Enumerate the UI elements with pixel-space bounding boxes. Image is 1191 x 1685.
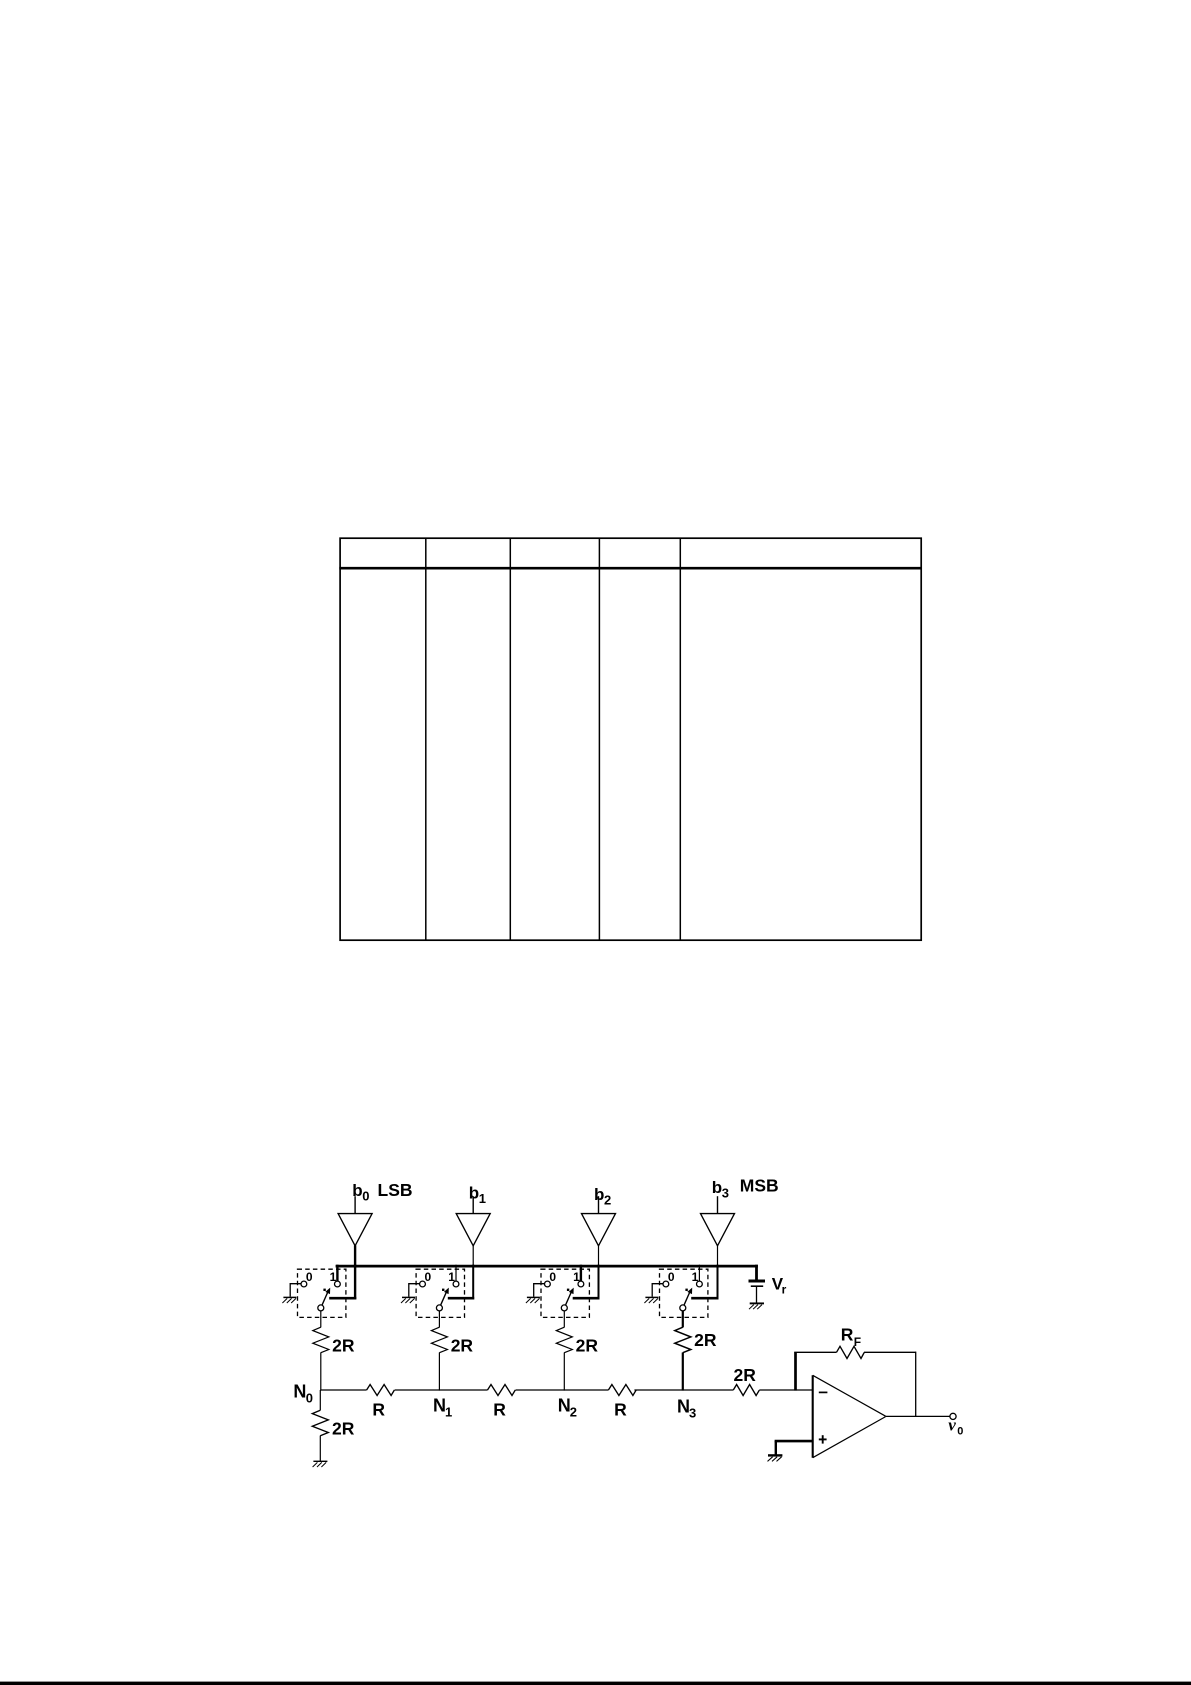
svg-text:R: R (614, 1399, 627, 1419)
svg-text:2R: 2R (451, 1336, 474, 1356)
svg-text:v: v (948, 1416, 956, 1435)
svg-text:2R: 2R (576, 1336, 599, 1356)
svg-text:2: 2 (604, 1193, 611, 1208)
svg-text:0: 0 (668, 1270, 675, 1284)
svg-text:b: b (352, 1181, 362, 1200)
svg-text:R: R (493, 1399, 506, 1419)
svg-text:2R: 2R (332, 1336, 355, 1356)
svg-text:2: 2 (570, 1405, 577, 1420)
svg-text:R: R (841, 1324, 854, 1344)
svg-text:LSB: LSB (378, 1180, 413, 1200)
svg-text:2R: 2R (734, 1365, 757, 1385)
svg-text:0: 0 (549, 1270, 556, 1284)
svg-text:0: 0 (362, 1189, 369, 1204)
svg-text:2R: 2R (694, 1330, 717, 1350)
svg-text:2R: 2R (332, 1419, 355, 1439)
svg-text:MSB: MSB (740, 1176, 779, 1196)
svg-text:N: N (293, 1382, 306, 1402)
svg-text:0: 0 (425, 1270, 432, 1284)
svg-text:F: F (854, 1335, 861, 1349)
svg-text:3: 3 (689, 1406, 696, 1421)
svg-text:r: r (782, 1282, 787, 1296)
svg-text:3: 3 (722, 1185, 729, 1200)
svg-text:1: 1 (479, 1191, 486, 1206)
svg-text:1: 1 (445, 1405, 452, 1420)
svg-text:0: 0 (306, 1270, 313, 1284)
svg-text:b: b (712, 1178, 722, 1197)
svg-text:0: 0 (306, 1391, 313, 1406)
svg-text:R: R (372, 1399, 385, 1419)
svg-text:0: 0 (957, 1426, 963, 1438)
